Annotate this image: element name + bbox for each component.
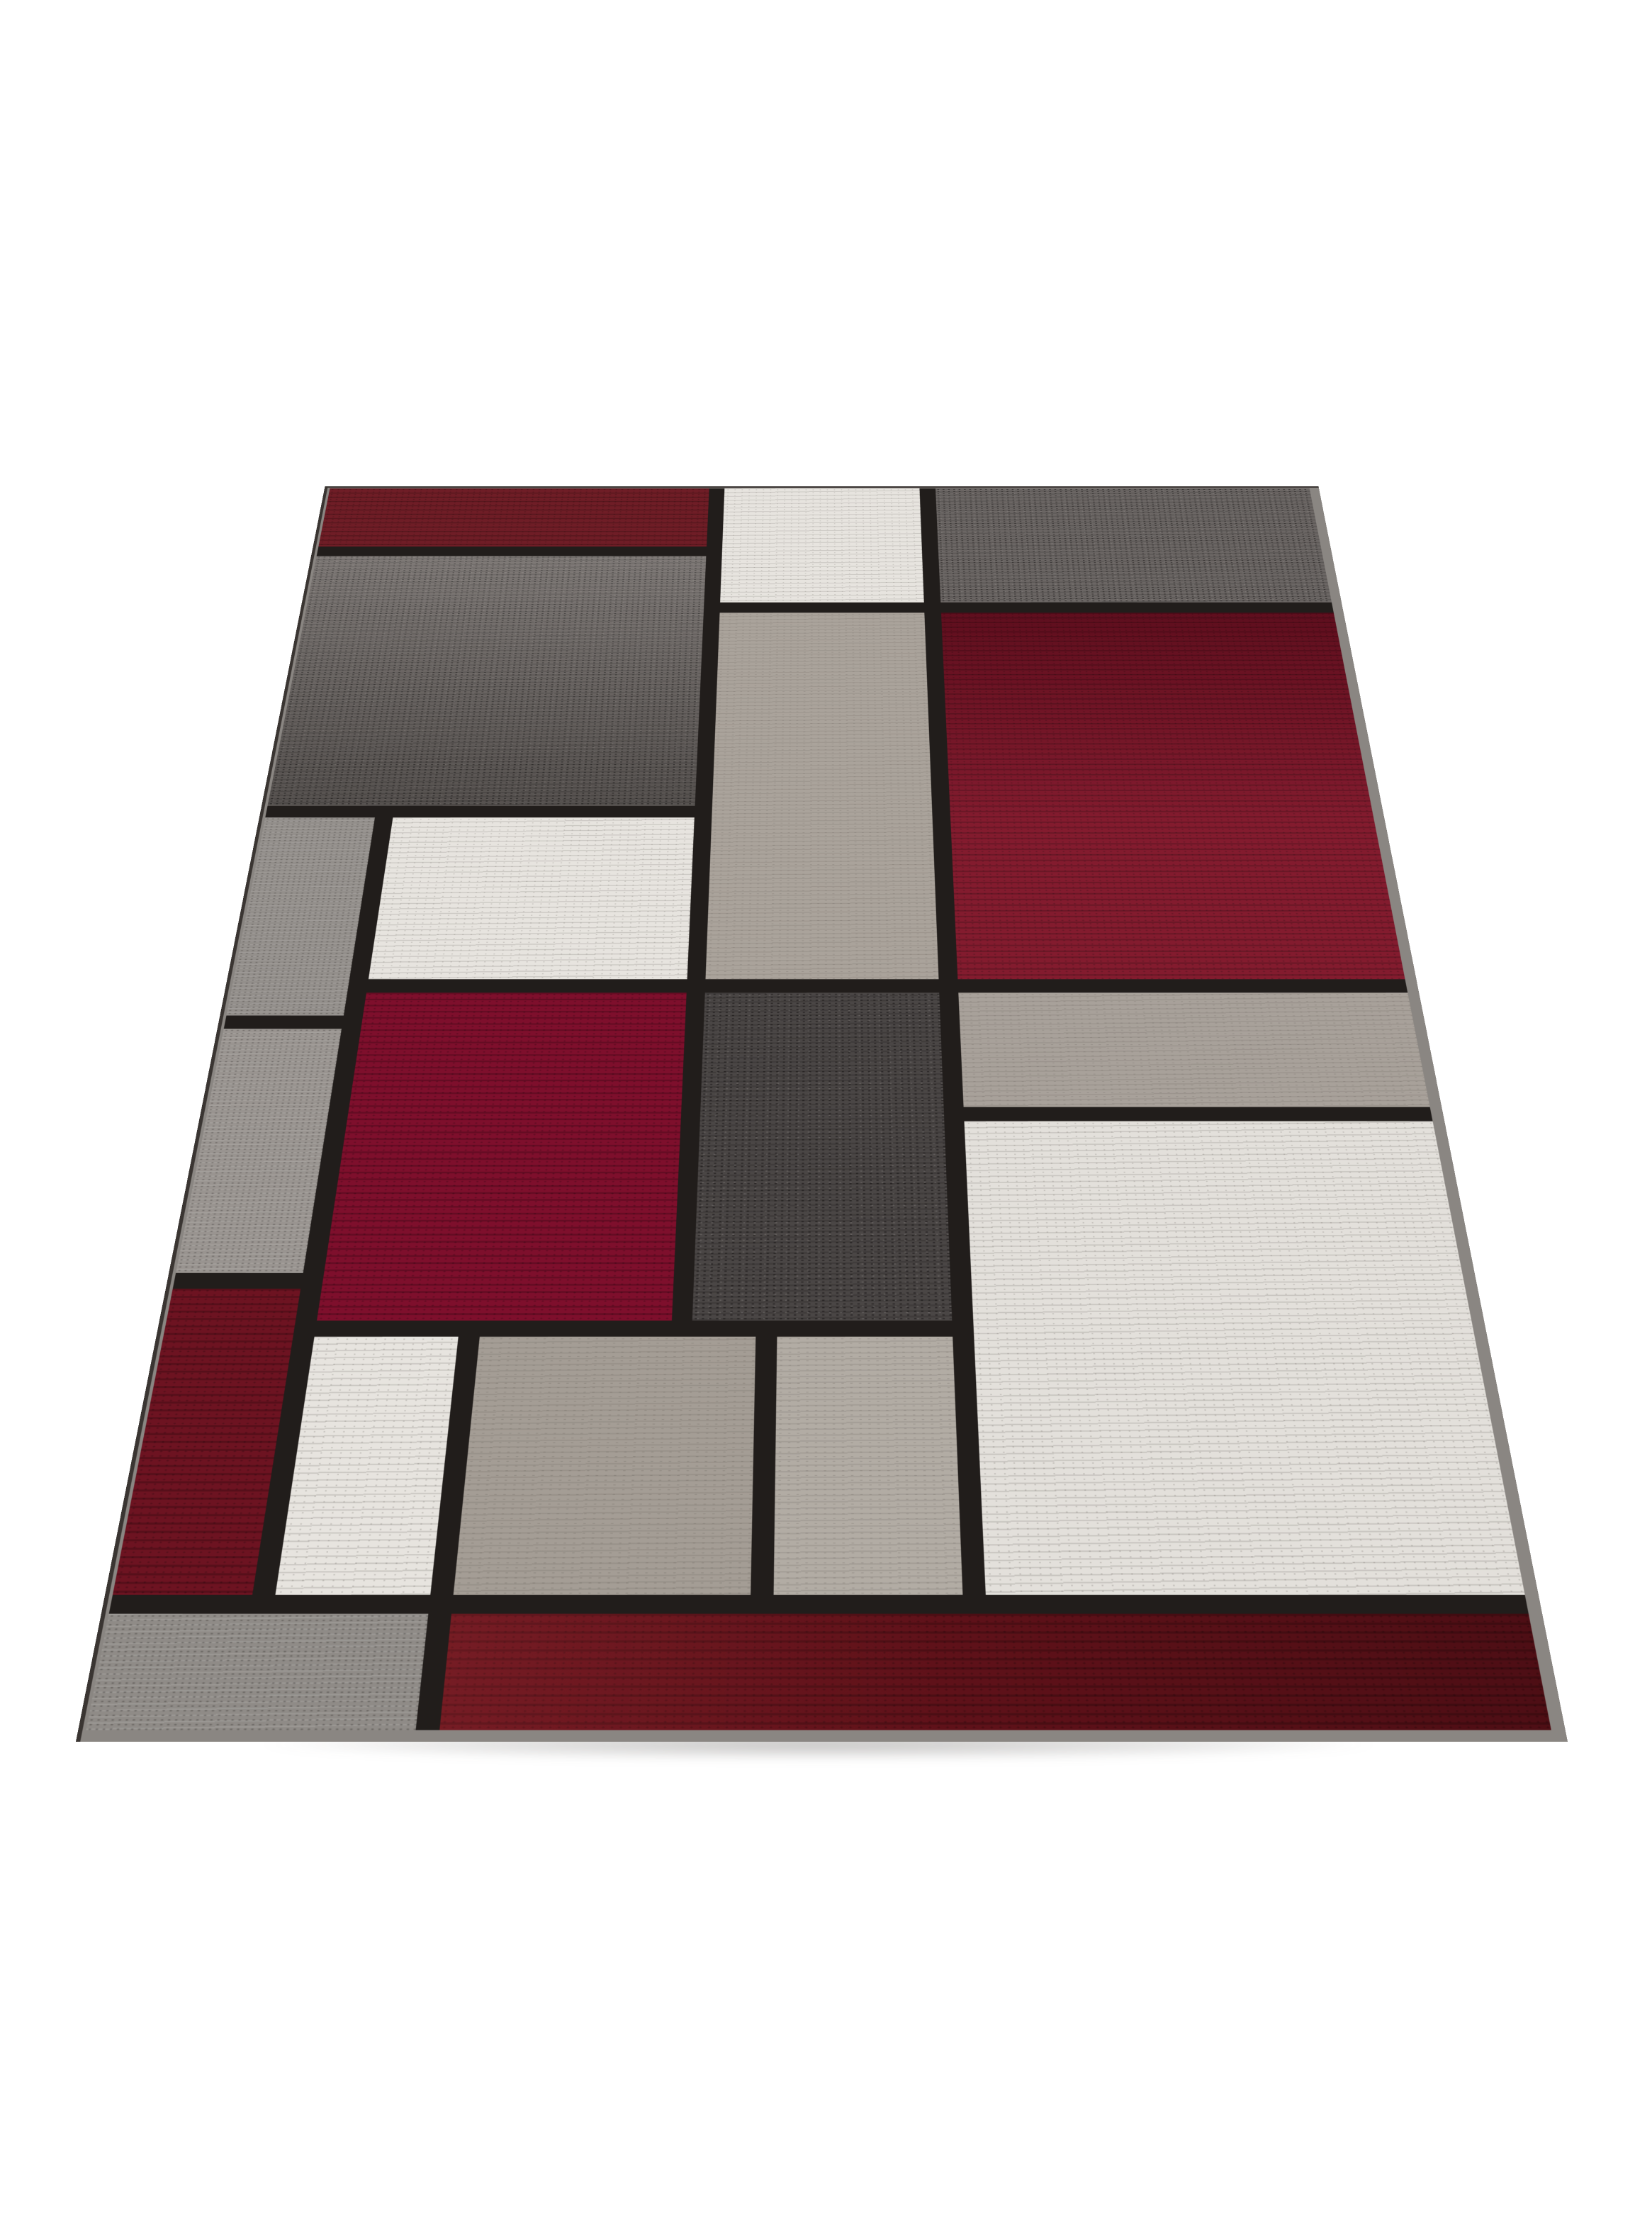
rug-block-darkgray-top-right <box>935 488 1332 603</box>
rug <box>76 486 1568 1742</box>
rug-block-taupe-column <box>706 612 939 979</box>
rug-block-gray-bottom-corner <box>86 1614 428 1730</box>
rug-block-red-right <box>941 612 1405 979</box>
rug-block-red-left-column <box>113 1289 300 1595</box>
rug-block-band-red-top <box>318 488 709 547</box>
rug-block-white-mid-left <box>369 817 695 979</box>
rug-block-white-small-bottom <box>275 1337 459 1595</box>
rug-block-band-red-bottom <box>439 1614 1551 1730</box>
rug-block-darkgray-center <box>692 992 952 1321</box>
rug-product-photo <box>0 0 1652 2233</box>
rug-block-taupe-bottom-a <box>453 1337 756 1595</box>
rug-pattern-grid <box>86 488 1551 1730</box>
rug-block-taupe-band-right <box>958 992 1430 1107</box>
rug-block-gray-left-lower <box>176 1029 342 1272</box>
rug-block-white-top <box>720 488 924 603</box>
rug-block-red-center <box>317 992 687 1321</box>
rug-block-darkgray-left <box>267 556 706 806</box>
page <box>0 0 1652 2233</box>
rug-block-taupe-bottom-b <box>774 1337 963 1595</box>
rug-block-gray-left-upper <box>226 817 375 1015</box>
rug-block-white-big-right <box>964 1121 1525 1595</box>
